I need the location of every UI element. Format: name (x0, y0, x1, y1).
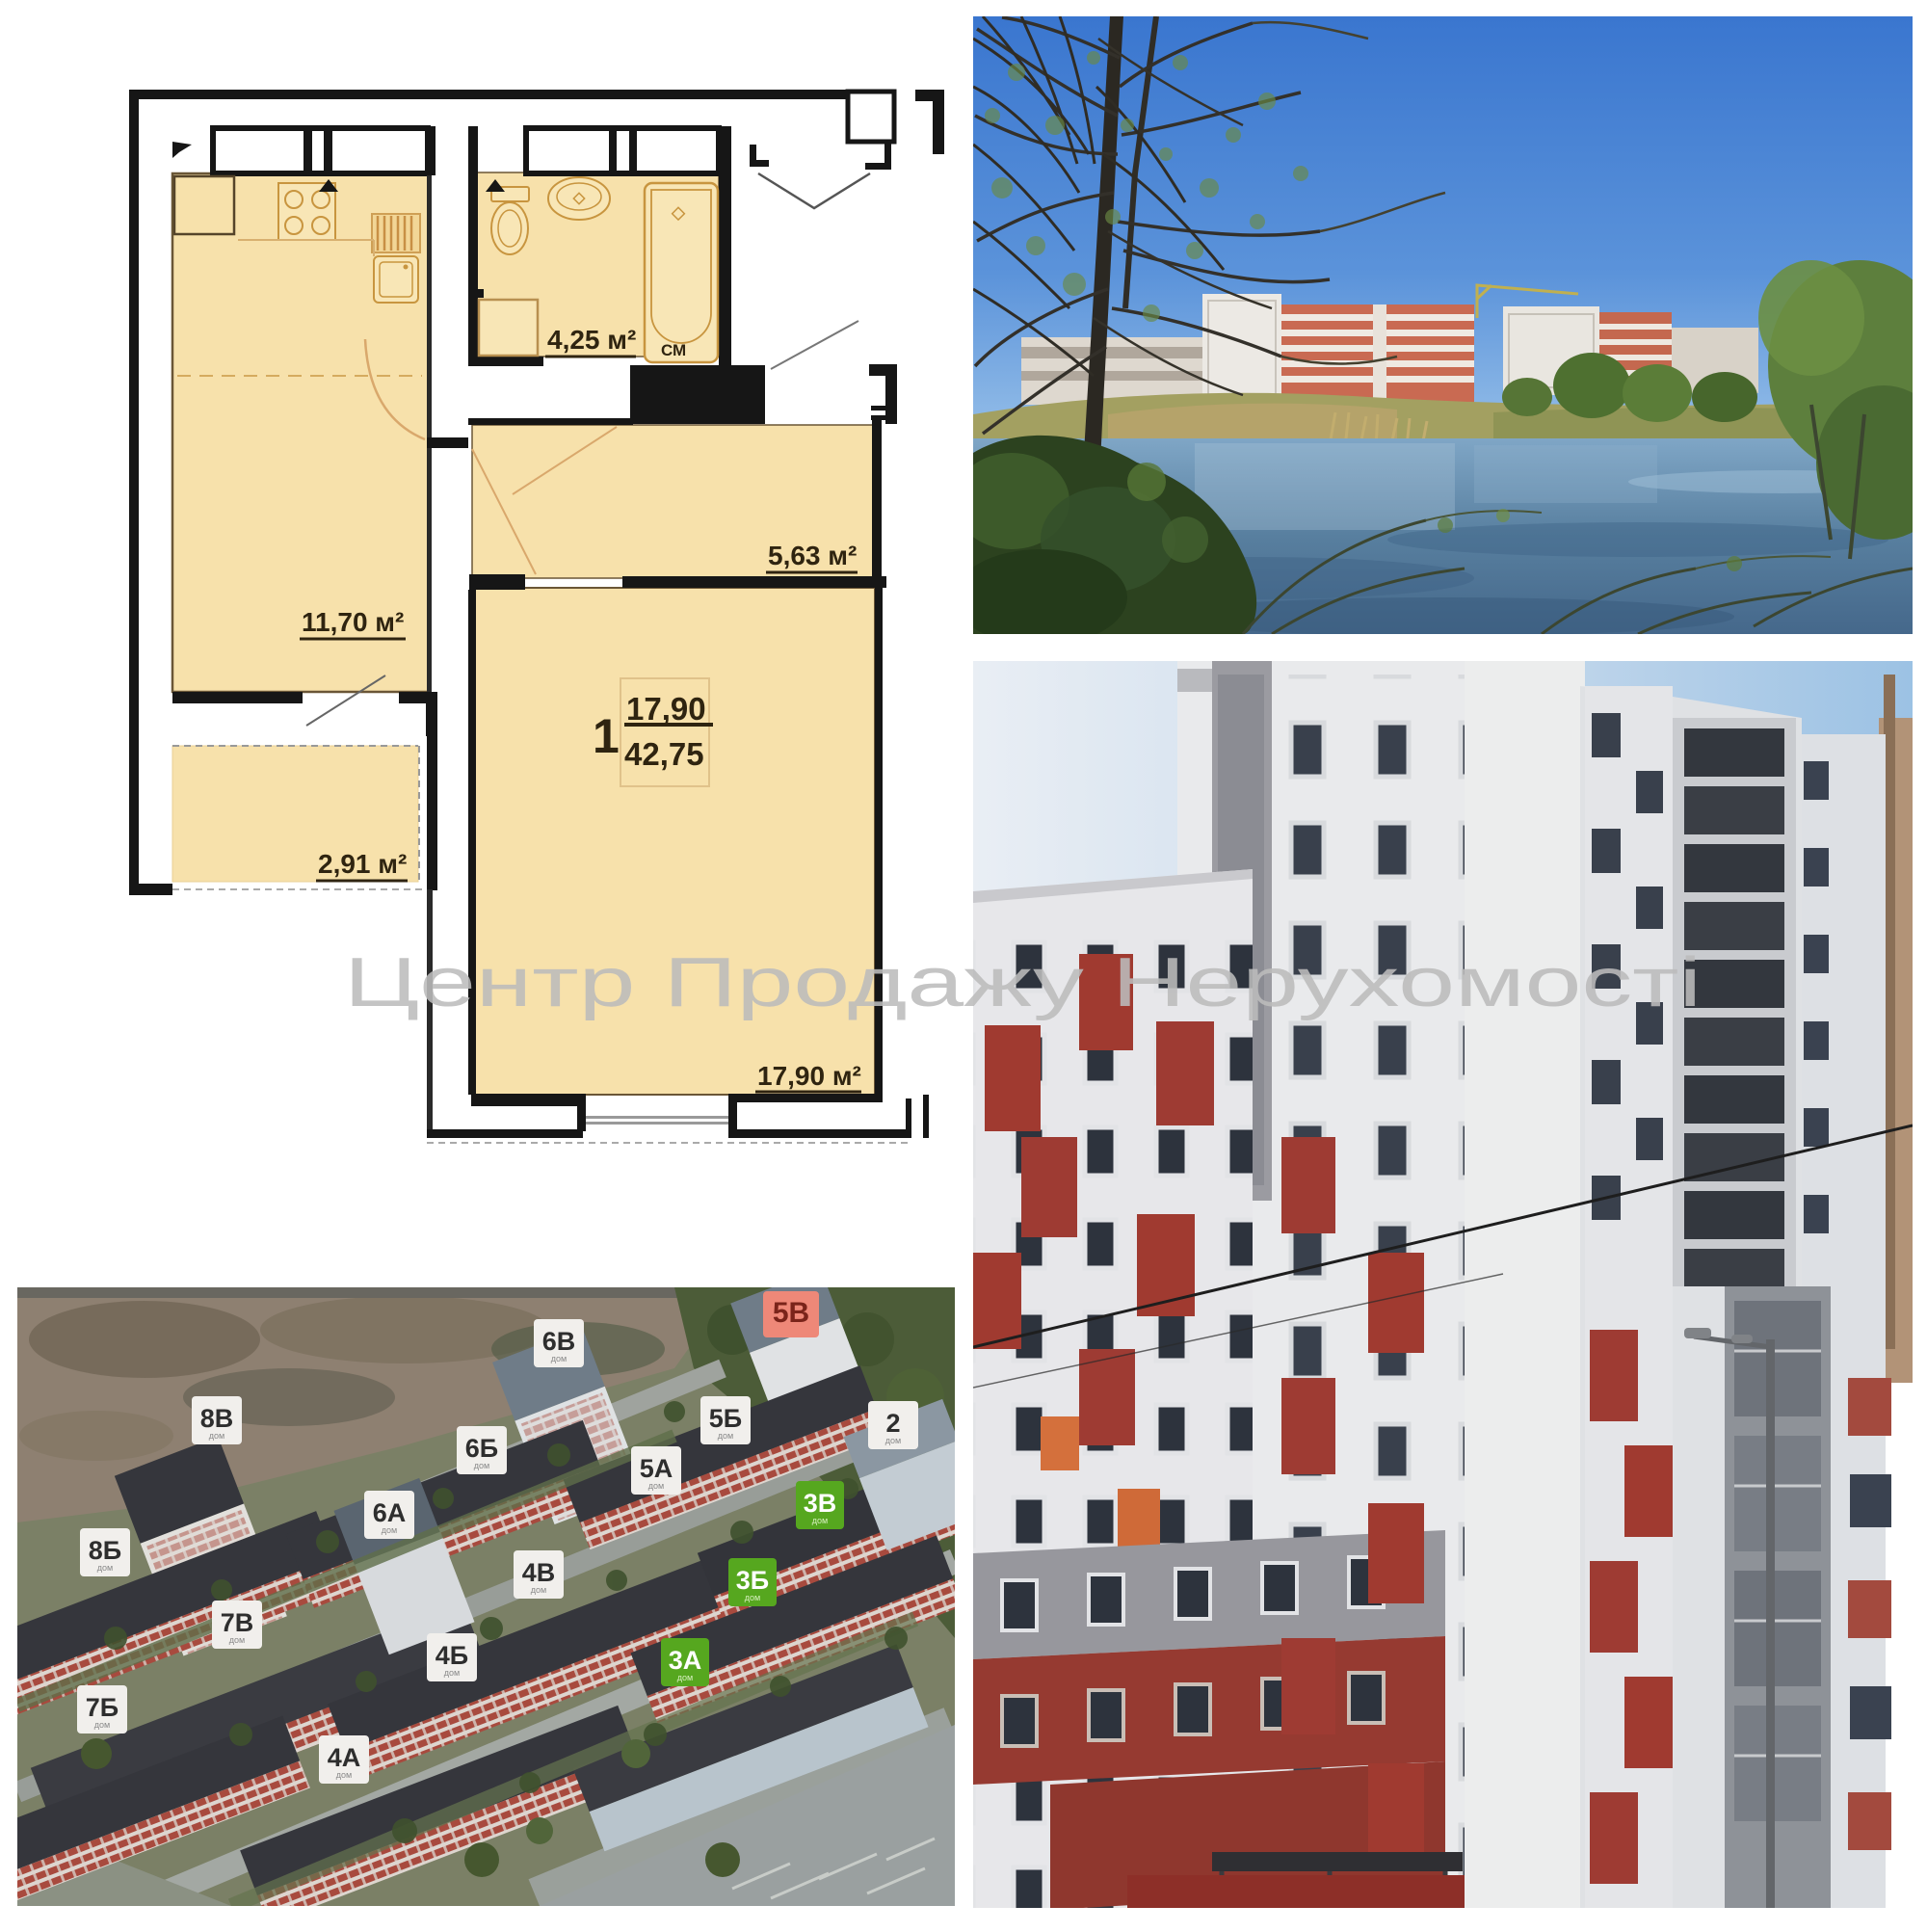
svg-text:2: 2 (885, 1409, 900, 1438)
svg-text:6В: 6В (542, 1327, 576, 1356)
svg-text:7Б: 7Б (86, 1693, 119, 1722)
svg-text:2,91 м²: 2,91 м² (318, 849, 407, 879)
svg-text:дом: дом (648, 1481, 664, 1491)
svg-text:Центр Продажу Нерухомості: Центр Продажу Нерухомості (344, 944, 1702, 1021)
svg-text:дом: дом (444, 1668, 460, 1678)
svg-text:17,90: 17,90 (626, 691, 706, 727)
svg-text:5,63 м²: 5,63 м² (768, 541, 857, 570)
svg-text:5Б: 5Б (709, 1404, 742, 1433)
svg-text:3Б: 3Б (736, 1566, 769, 1595)
svg-text:4,25 м²: 4,25 м² (547, 325, 636, 355)
svg-text:дом: дом (97, 1563, 113, 1573)
svg-text:дом: дом (94, 1720, 110, 1730)
svg-text:дом: дом (812, 1516, 828, 1525)
svg-text:4Б: 4Б (436, 1641, 468, 1670)
svg-text:дом: дом (718, 1431, 733, 1441)
svg-text:дом: дом (885, 1436, 901, 1445)
svg-text:3В: 3В (804, 1489, 837, 1518)
svg-text:дом: дом (229, 1635, 245, 1645)
svg-text:17,90 м²: 17,90 м² (757, 1061, 861, 1091)
svg-text:дом: дом (474, 1461, 489, 1470)
svg-text:6А: 6А (373, 1498, 407, 1527)
svg-text:11,70 м²: 11,70 м² (302, 607, 404, 637)
svg-text:7В: 7В (221, 1608, 254, 1637)
svg-text:дом: дом (551, 1354, 567, 1363)
svg-text:дом: дом (336, 1770, 352, 1780)
svg-text:8В: 8В (200, 1404, 234, 1433)
svg-text:42,75: 42,75 (624, 736, 704, 772)
svg-text:дом: дом (745, 1593, 760, 1602)
svg-text:3А: 3А (669, 1646, 702, 1675)
svg-text:4А: 4А (328, 1743, 361, 1772)
svg-text:дом: дом (209, 1431, 224, 1441)
svg-text:дом: дом (677, 1673, 693, 1682)
svg-text:8Б: 8Б (89, 1536, 121, 1565)
svg-text:СМ: СМ (661, 341, 686, 359)
svg-text:5В: 5В (773, 1297, 809, 1329)
svg-text:6Б: 6Б (465, 1434, 498, 1463)
svg-text:4В: 4В (522, 1558, 556, 1587)
svg-text:1: 1 (593, 709, 620, 763)
svg-text:дом: дом (382, 1525, 397, 1535)
svg-text:5А: 5А (640, 1454, 673, 1483)
svg-text:дом: дом (531, 1585, 546, 1595)
